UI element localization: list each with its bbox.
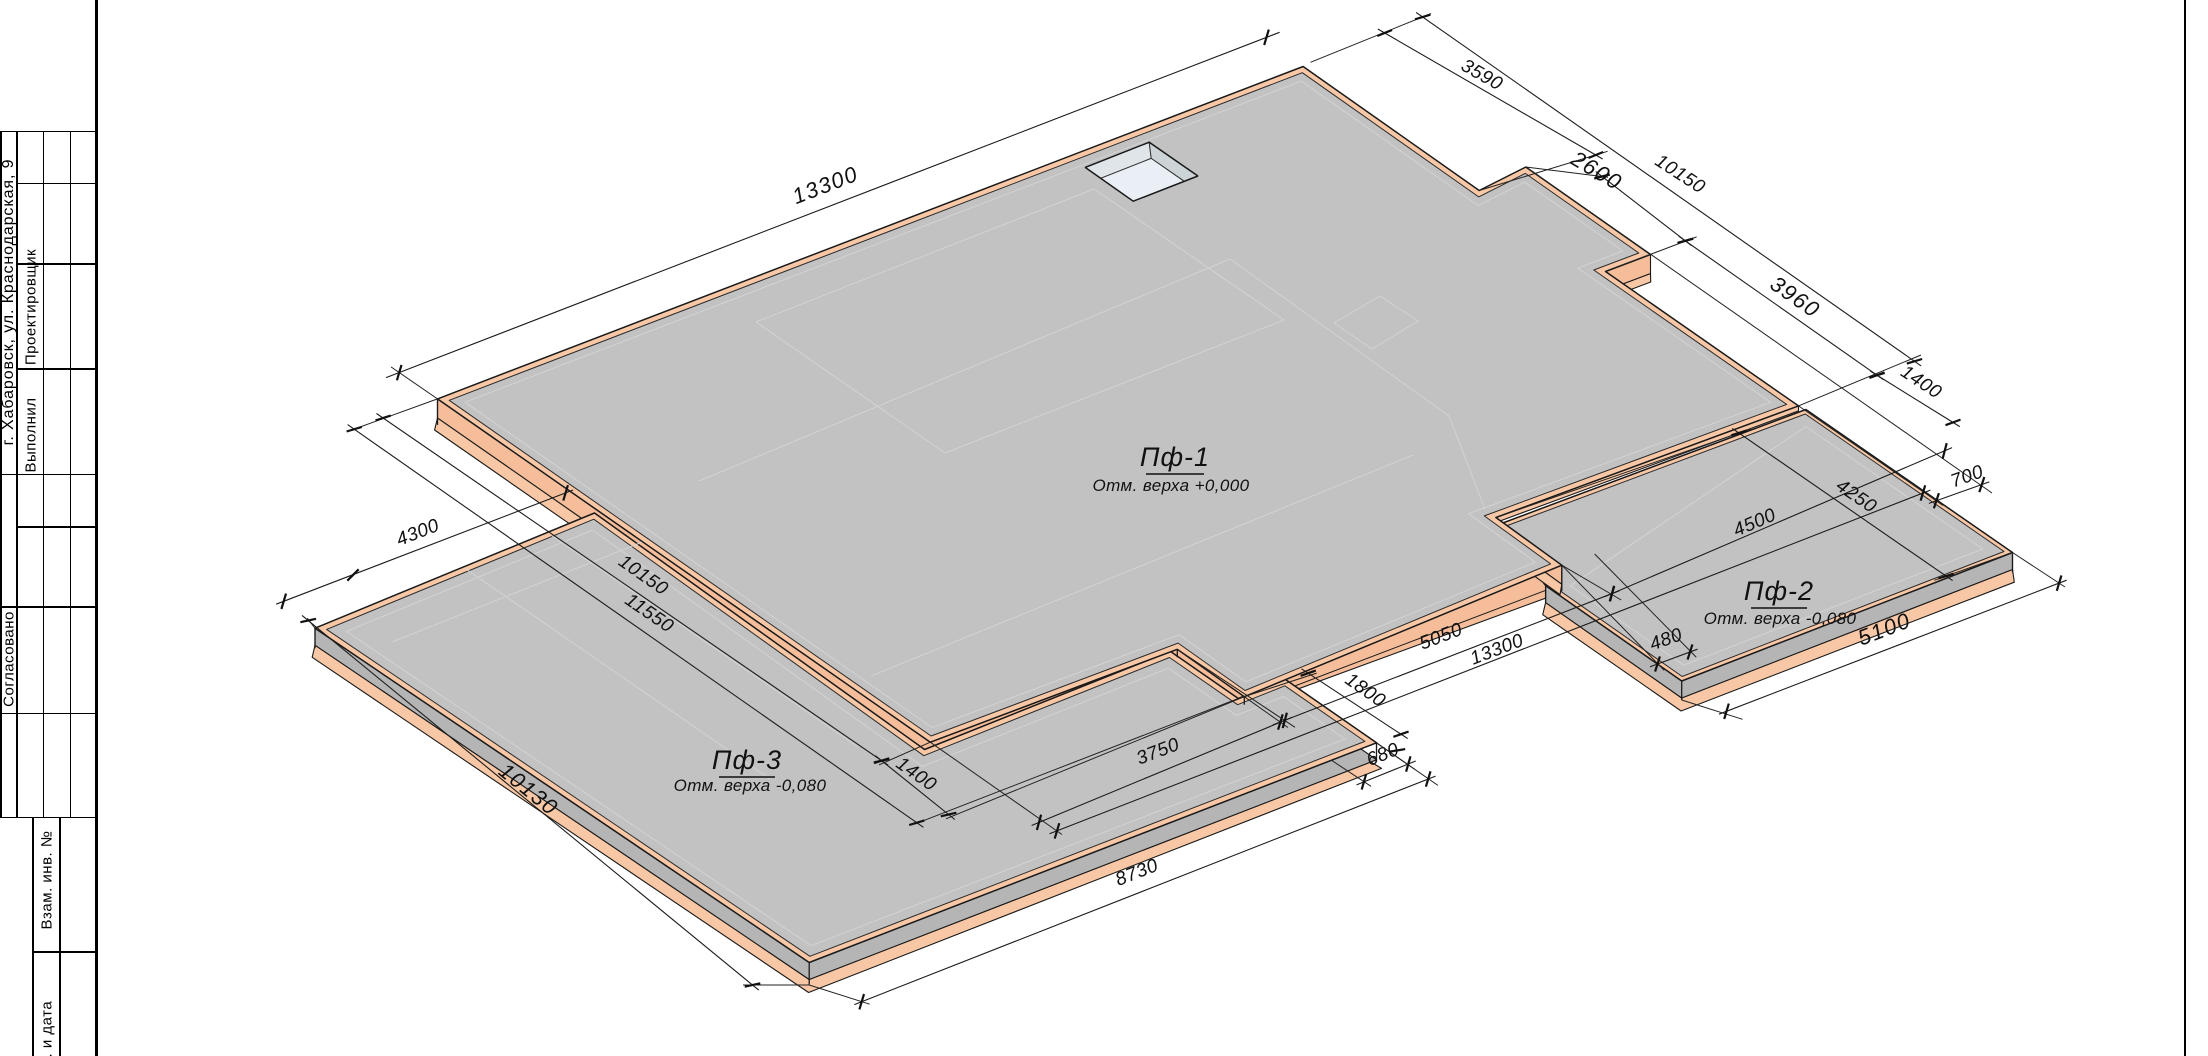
svg-text:Пф-2: Пф-2: [1744, 576, 1814, 606]
svg-text:Пф-1: Пф-1: [1140, 442, 1210, 472]
svg-text:Отм. верха +0,000: Отм. верха +0,000: [1093, 476, 1250, 495]
svg-text:Отм. верха -0,080: Отм. верха -0,080: [1704, 609, 1857, 628]
svg-text:Пф-3: Пф-3: [712, 745, 782, 775]
svg-text:Отм. верха -0,080: Отм. верха -0,080: [674, 776, 827, 795]
